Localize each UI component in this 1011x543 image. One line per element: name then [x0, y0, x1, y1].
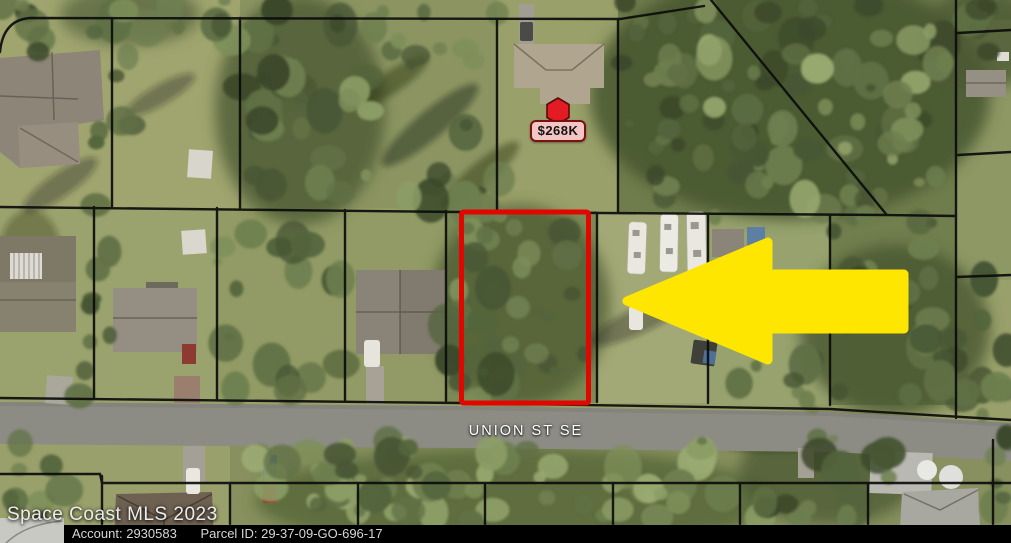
aerial-photo: $268K UNION ST SE Space Coast MLS 2023 A… — [0, 0, 1011, 543]
footer-bar: Account: 2930583 Parcel ID: 29-37-09-GO-… — [64, 525, 1011, 543]
aerial-map-canvas — [0, 0, 1011, 543]
street-label: UNION ST SE — [452, 423, 600, 439]
mls-watermark: Space Coast MLS 2023 — [7, 504, 218, 526]
price-label: $268K — [530, 120, 587, 142]
parcel-id-value: 29-37-09-GO-696-17 — [261, 526, 382, 541]
truck-dark — [690, 339, 717, 366]
account-value: 2930583 — [126, 526, 177, 541]
rv-1 — [627, 222, 647, 275]
house-mid-left-a — [0, 236, 76, 332]
shed-white-top — [187, 149, 213, 179]
account-label: Account: — [72, 526, 123, 541]
parcel-id-label: Parcel ID: — [200, 526, 257, 541]
price-marker: $268K — [527, 97, 589, 142]
rv-2 — [659, 214, 678, 272]
